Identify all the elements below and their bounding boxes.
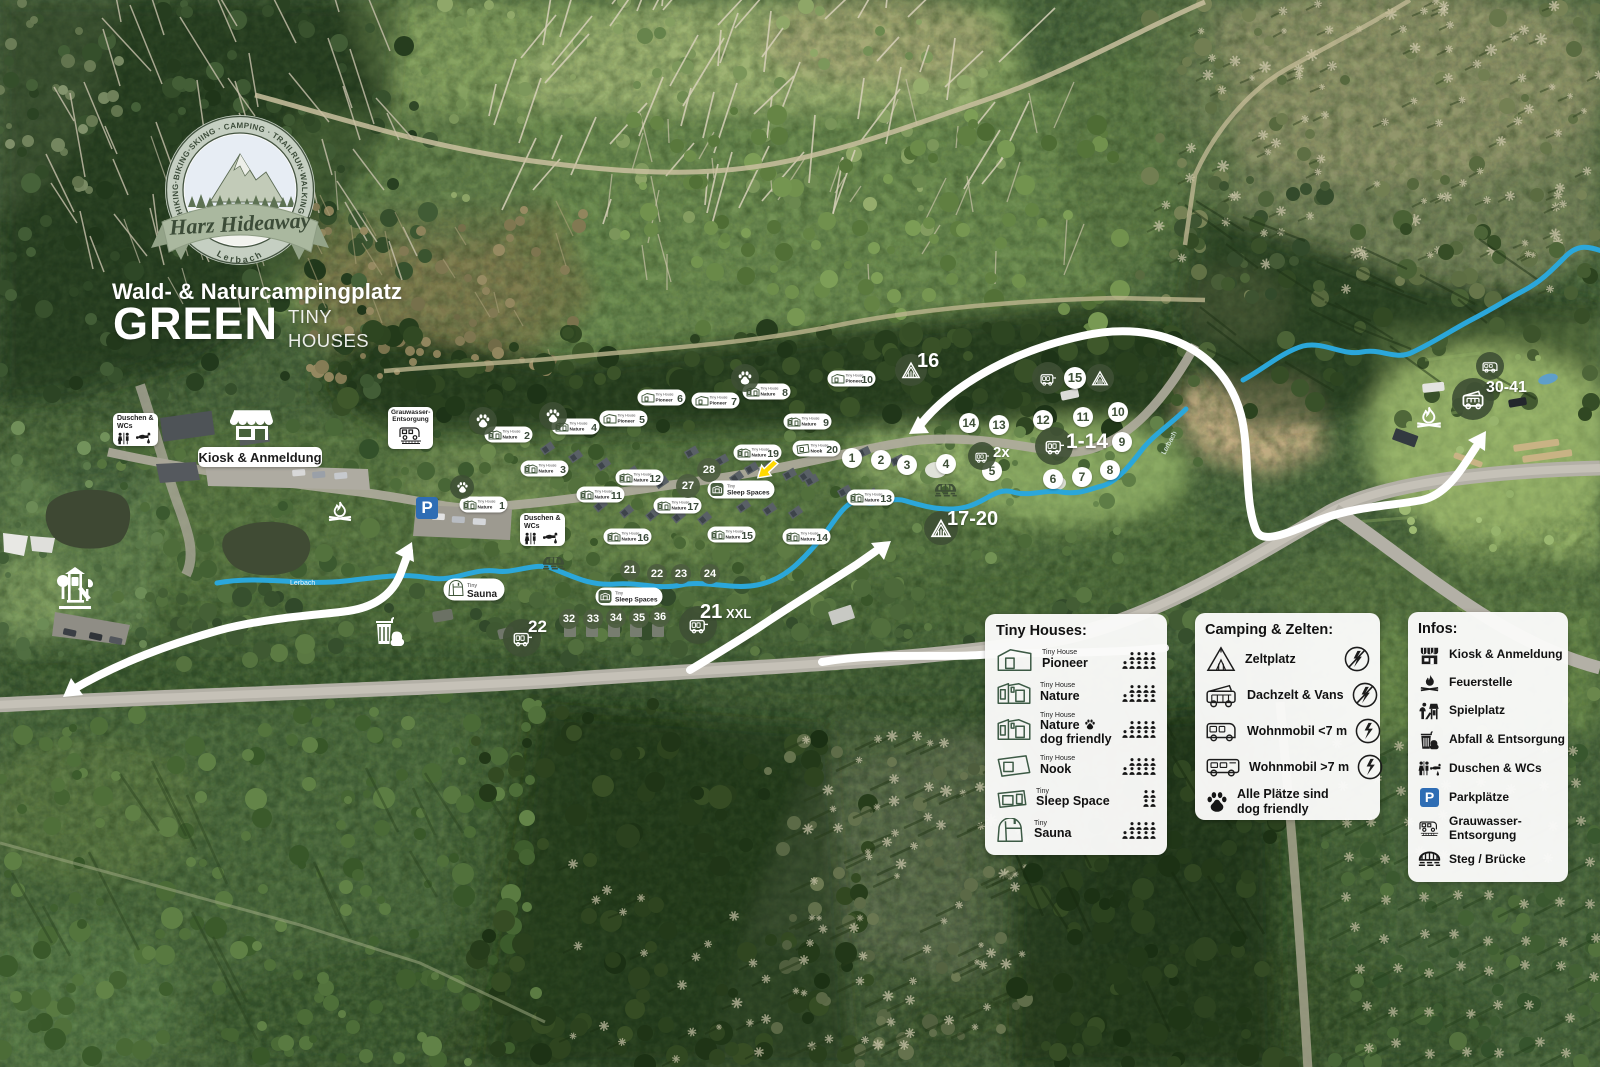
svg-text:7: 7 <box>731 396 737 408</box>
svg-text:Tiny House: Tiny House <box>618 414 636 418</box>
svg-text:8: 8 <box>782 387 788 399</box>
svg-text:Tiny House: Tiny House <box>802 417 820 421</box>
svg-text:12: 12 <box>649 473 661 485</box>
svg-text:Tiny House: Tiny House <box>539 464 557 468</box>
svg-text:Nature: Nature <box>801 536 816 541</box>
svg-text:16: 16 <box>637 532 649 544</box>
svg-text:Tiny House: Tiny House <box>595 490 613 494</box>
svg-text:Pioneer: Pioneer <box>846 378 863 383</box>
svg-text:Nature: Nature <box>622 536 637 541</box>
svg-text:11: 11 <box>611 490 622 502</box>
svg-text:Lerbach: Lerbach <box>290 580 315 587</box>
svg-text:Nature: Nature <box>595 494 610 499</box>
svg-text:Nature: Nature <box>865 497 880 502</box>
svg-text:Sauna: Sauna <box>467 589 497 600</box>
svg-text:Pioneer: Pioneer <box>656 397 673 402</box>
svg-text:10: 10 <box>861 374 873 386</box>
svg-text:Tiny House: Tiny House <box>570 422 588 426</box>
svg-text:4: 4 <box>591 422 597 434</box>
svg-text:Tiny: Tiny <box>615 591 624 596</box>
svg-text:Nature: Nature <box>570 426 585 431</box>
svg-text:Tiny House: Tiny House <box>656 393 674 397</box>
svg-text:13: 13 <box>880 493 892 505</box>
svg-text:Nature: Nature <box>539 468 554 473</box>
svg-text:Tiny House: Tiny House <box>710 396 728 400</box>
svg-text:Sleep Spaces: Sleep Spaces <box>727 490 770 497</box>
svg-text:Sleep Spaces: Sleep Spaces <box>615 597 658 604</box>
svg-text:Nook: Nook <box>811 448 823 453</box>
svg-text:14: 14 <box>816 532 828 544</box>
svg-text:Nature: Nature <box>503 434 518 439</box>
svg-text:Tiny: Tiny <box>727 484 736 489</box>
svg-text:Pioneer: Pioneer <box>710 400 727 405</box>
svg-text:3: 3 <box>560 464 566 476</box>
svg-text:5: 5 <box>639 414 645 426</box>
svg-text:Nature: Nature <box>634 477 649 482</box>
svg-text:Tiny House: Tiny House <box>478 500 496 504</box>
svg-text:Pioneer: Pioneer <box>618 418 635 423</box>
svg-text:Nature: Nature <box>761 391 776 396</box>
svg-text:9: 9 <box>823 417 829 429</box>
svg-text:6: 6 <box>677 393 683 405</box>
svg-text:Nature: Nature <box>726 534 741 539</box>
svg-text:Tiny House: Tiny House <box>503 430 521 434</box>
svg-text:Tiny House: Tiny House <box>761 387 779 391</box>
svg-text:1: 1 <box>499 500 505 512</box>
svg-text:Nature: Nature <box>752 452 767 457</box>
svg-text:Nature: Nature <box>478 504 493 509</box>
svg-text:Nature: Nature <box>672 505 687 510</box>
svg-text:15: 15 <box>741 530 753 542</box>
svg-text:Nature: Nature <box>802 421 817 426</box>
svg-text:17: 17 <box>687 501 699 513</box>
svg-text:2: 2 <box>524 430 530 442</box>
svg-text:20: 20 <box>826 444 838 456</box>
